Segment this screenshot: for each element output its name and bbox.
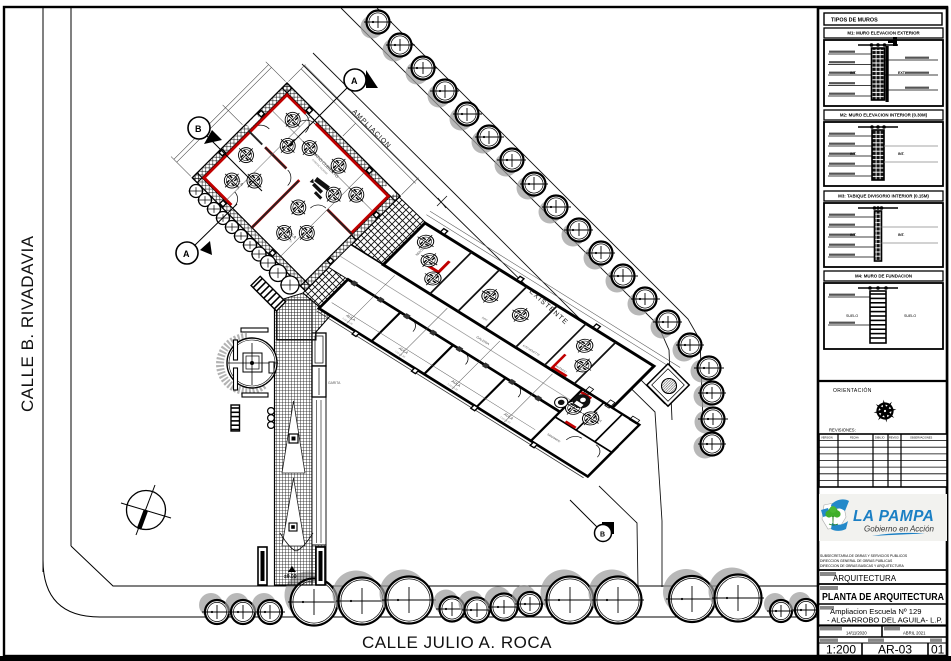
svg-text:CALLE B. RIVADAVIA: CALLE B. RIVADAVIA [18, 235, 37, 412]
svg-text:LA PAMPA: LA PAMPA [853, 508, 934, 525]
svg-text:01: 01 [931, 643, 945, 657]
svg-text:REVISIONES:: REVISIONES: [829, 428, 856, 433]
svg-text:EXT.: EXT. [898, 71, 906, 75]
svg-text:VERSION: VERSION [821, 436, 833, 440]
svg-text:M1: MURO ELEVACION EXTERIOR: M1: MURO ELEVACION EXTERIOR [847, 31, 920, 36]
svg-text:M3: TABIQUE DIVISORIO INTERIOR: M3: TABIQUE DIVISORIO INTERIOR (0.15M) [838, 194, 929, 199]
svg-text:ORIENTACIÓN: ORIENTACIÓN [833, 387, 872, 394]
svg-text:DIBUJO: DIBUJO [875, 436, 885, 440]
svg-text:M4: MURO DE FUNDACION: M4: MURO DE FUNDACION [855, 274, 912, 279]
svg-text:GARITA: GARITA [328, 381, 341, 385]
svg-text:DIRECCION GENERAL DE OBRAS PUB: DIRECCION GENERAL DE OBRAS PUBLICAS [820, 559, 893, 563]
svg-text:REVISO: REVISO [889, 436, 899, 440]
svg-text:Gobierno en Acción: Gobierno en Acción [864, 525, 935, 534]
svg-text:OBSERVACIONES: OBSERVACIONES [910, 436, 933, 440]
svg-text:SUELO: SUELO [904, 314, 916, 318]
svg-text:CALLE JULIO A. ROCA: CALLE JULIO A. ROCA [362, 633, 552, 652]
svg-text:INT.: INT. [850, 233, 857, 237]
svg-text:A: A [351, 76, 358, 86]
svg-text:1:200: 1:200 [826, 643, 856, 657]
svg-text:M2: MURO ELEVACION INTERIOR (0: M2: MURO ELEVACION INTERIOR (0.30M) [840, 113, 928, 118]
svg-text:INT.: INT. [898, 233, 905, 237]
svg-text:INT.: INT. [898, 152, 905, 156]
svg-text:PLANTA DE ARQUITECTURA: PLANTA DE ARQUITECTURA [822, 592, 944, 603]
svg-text:INT.: INT. [850, 71, 857, 75]
svg-text:ARQUITECTURA: ARQUITECTURA [833, 574, 897, 583]
svg-text:AR-03: AR-03 [878, 643, 912, 657]
svg-text:INT.: INT. [850, 152, 857, 156]
svg-text:B: B [195, 124, 202, 134]
svg-text:SUBSECRETARIA DE OBRAS Y SERVI: SUBSECRETARIA DE OBRAS Y SERVICIOS PUBLI… [820, 554, 908, 558]
svg-text:B: B [600, 532, 605, 539]
svg-text:SUELO: SUELO [846, 314, 858, 318]
svg-text:±0.00: ±0.00 [284, 574, 297, 580]
svg-text:FECHA: FECHA [850, 436, 859, 440]
svg-text:- ALGARROBO DEL AGUILA- L.P.: - ALGARROBO DEL AGUILA- L.P. [827, 616, 943, 625]
svg-text:14/11/2020: 14/11/2020 [846, 631, 867, 636]
svg-text:TIPOS DE MUROS: TIPOS DE MUROS [831, 18, 878, 24]
svg-text:DIRECCION DE OBRAS BASICAS Y A: DIRECCION DE OBRAS BASICAS Y ARQUITECTUR… [820, 564, 904, 568]
svg-text:ABRIL 2021: ABRIL 2021 [903, 631, 926, 636]
svg-text:A: A [183, 249, 190, 259]
